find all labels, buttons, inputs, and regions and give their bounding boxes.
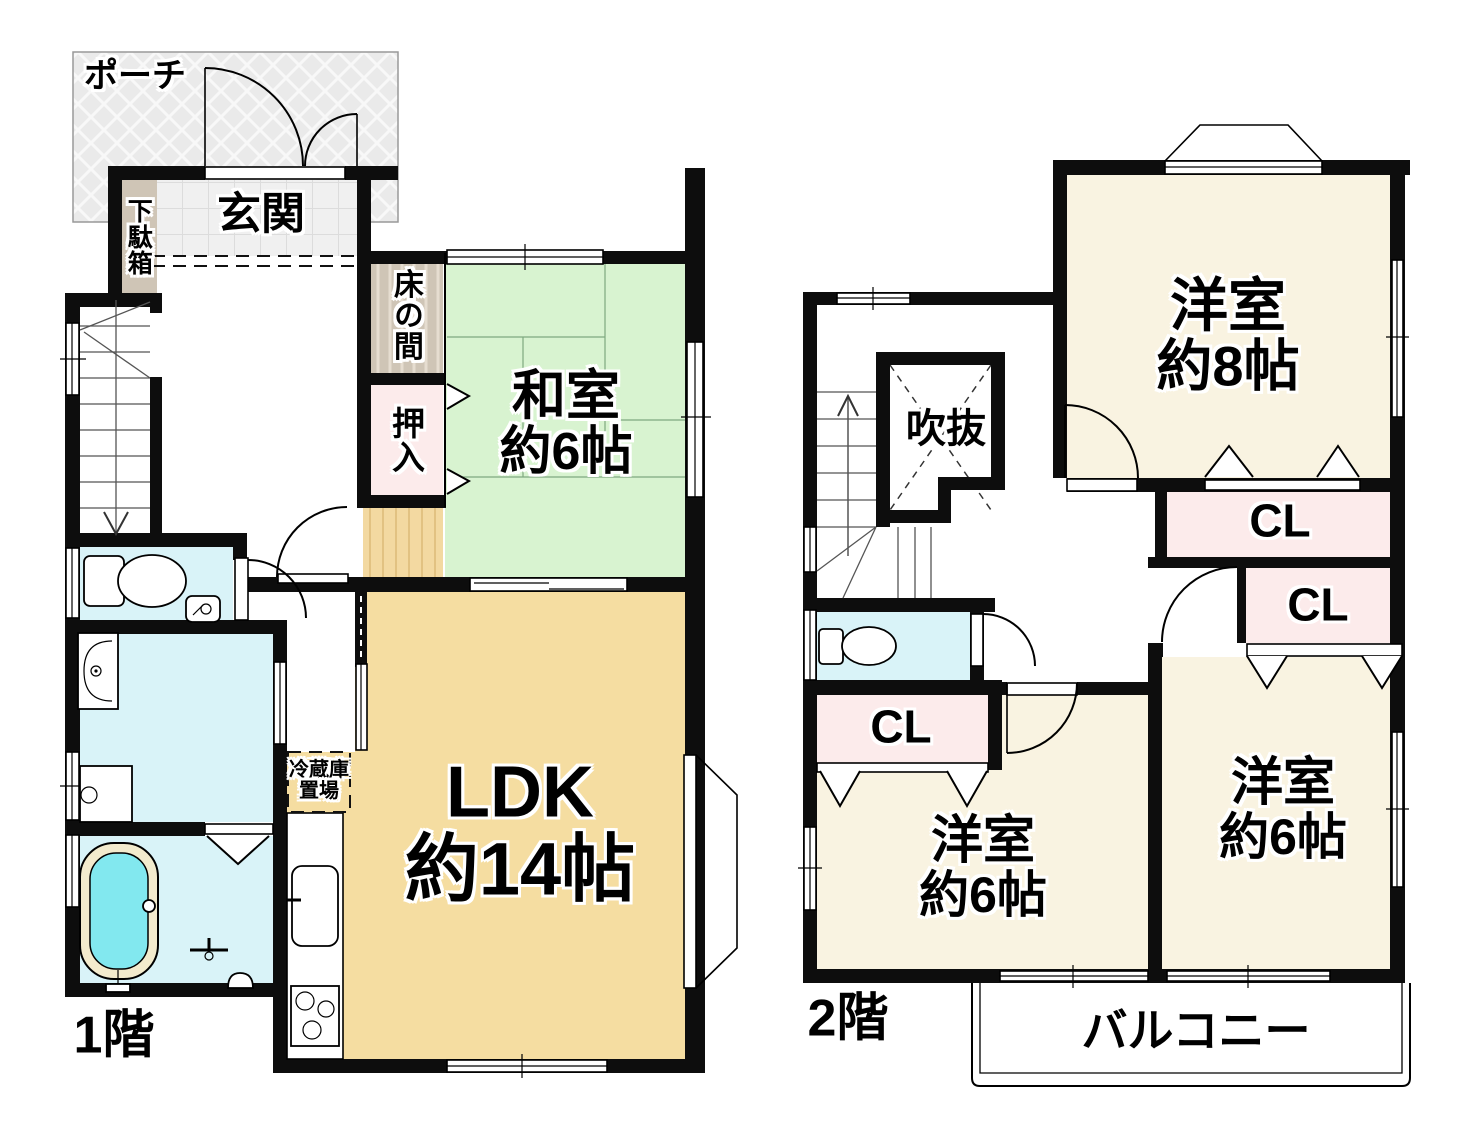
floor1-plan	[60, 52, 737, 1078]
washroom-sliding-door	[274, 662, 286, 744]
japanese-room-name: 和室	[500, 368, 633, 425]
window-stairs2	[804, 527, 816, 572]
tokonoma-label: 床の間	[389, 269, 421, 362]
atrium-label: 吹抜	[906, 408, 986, 450]
closet3-label: CL	[870, 703, 931, 752]
room6-right-name: 洋室	[1219, 756, 1347, 811]
toilet2-door	[971, 614, 1035, 666]
entrance-step-lines	[152, 256, 357, 266]
kitchen-counter-icon	[287, 813, 343, 1059]
fridge-space-line1: 冷蔵庫	[289, 760, 349, 781]
ldk-size: 約14帖	[405, 831, 635, 909]
room6-right-size: 約6帖	[1219, 811, 1347, 864]
bay-window-ldk	[684, 755, 737, 988]
bath-stool-icon	[228, 973, 253, 988]
balcony-label: バルコニー	[1081, 1007, 1310, 1056]
stairs-down-icon	[80, 300, 150, 535]
oshiire-label: 押入	[388, 406, 423, 474]
corridor-area	[277, 592, 355, 752]
window-stairs	[60, 323, 86, 395]
closet2-label: CL	[1287, 581, 1348, 630]
room6-right-door	[1162, 567, 1237, 657]
japanese-room-label: 和室 約6帖	[500, 368, 633, 480]
corner-sink-icon	[186, 596, 220, 622]
hall-ldk-door	[277, 507, 348, 583]
toilet-icon	[84, 555, 186, 607]
ldk-label: LDK 約14帖	[405, 755, 635, 910]
room6-left-size: 約6帖	[919, 869, 1047, 922]
window-toilet2	[804, 610, 816, 680]
floorplan-canvas: ポーチ 玄関 下駄箱 床の間 押入 和室 約6帖 LDK 約14帖 冷蔵庫 置場…	[0, 0, 1481, 1135]
closet1-label: CL	[1249, 497, 1310, 546]
corridor-sliding-door	[356, 664, 367, 750]
window-toilet	[66, 548, 79, 618]
room6-right-label: 洋室 約6帖	[1219, 756, 1347, 864]
entrance-label: 玄関	[217, 192, 305, 239]
room6-left-name: 洋室	[919, 814, 1047, 869]
floor1-label: 1階	[74, 1008, 155, 1063]
ldk-name: LDK	[405, 755, 635, 831]
floor2-label: 2階	[808, 991, 889, 1046]
bathtub-icon	[80, 843, 158, 992]
room8-label: 洋室 約8帖	[1156, 276, 1299, 397]
japanese-room-size: 約6帖	[500, 425, 633, 480]
room6-left-label: 洋室 約6帖	[919, 814, 1047, 922]
room8-name: 洋室	[1156, 276, 1299, 337]
window-bathroom	[66, 835, 79, 907]
washbasin-icon	[78, 633, 118, 709]
room8-size: 約8帖	[1156, 337, 1299, 396]
floorplan-drawing	[0, 0, 1481, 1135]
japanese-room-sliding-door	[470, 578, 627, 591]
washing-machine-icon	[80, 766, 132, 822]
porch-label: ポーチ	[84, 58, 186, 94]
fridge-space-line2: 置場	[289, 781, 349, 802]
fridge-space-label: 冷蔵庫 置場	[289, 760, 349, 802]
bay-window-room8	[1165, 125, 1322, 174]
shoe-cabinet-label: 下駄箱	[125, 198, 152, 276]
wood-floor-strip	[363, 507, 443, 577]
window-hallway-top	[837, 287, 910, 310]
toilet2-icon	[819, 627, 896, 665]
